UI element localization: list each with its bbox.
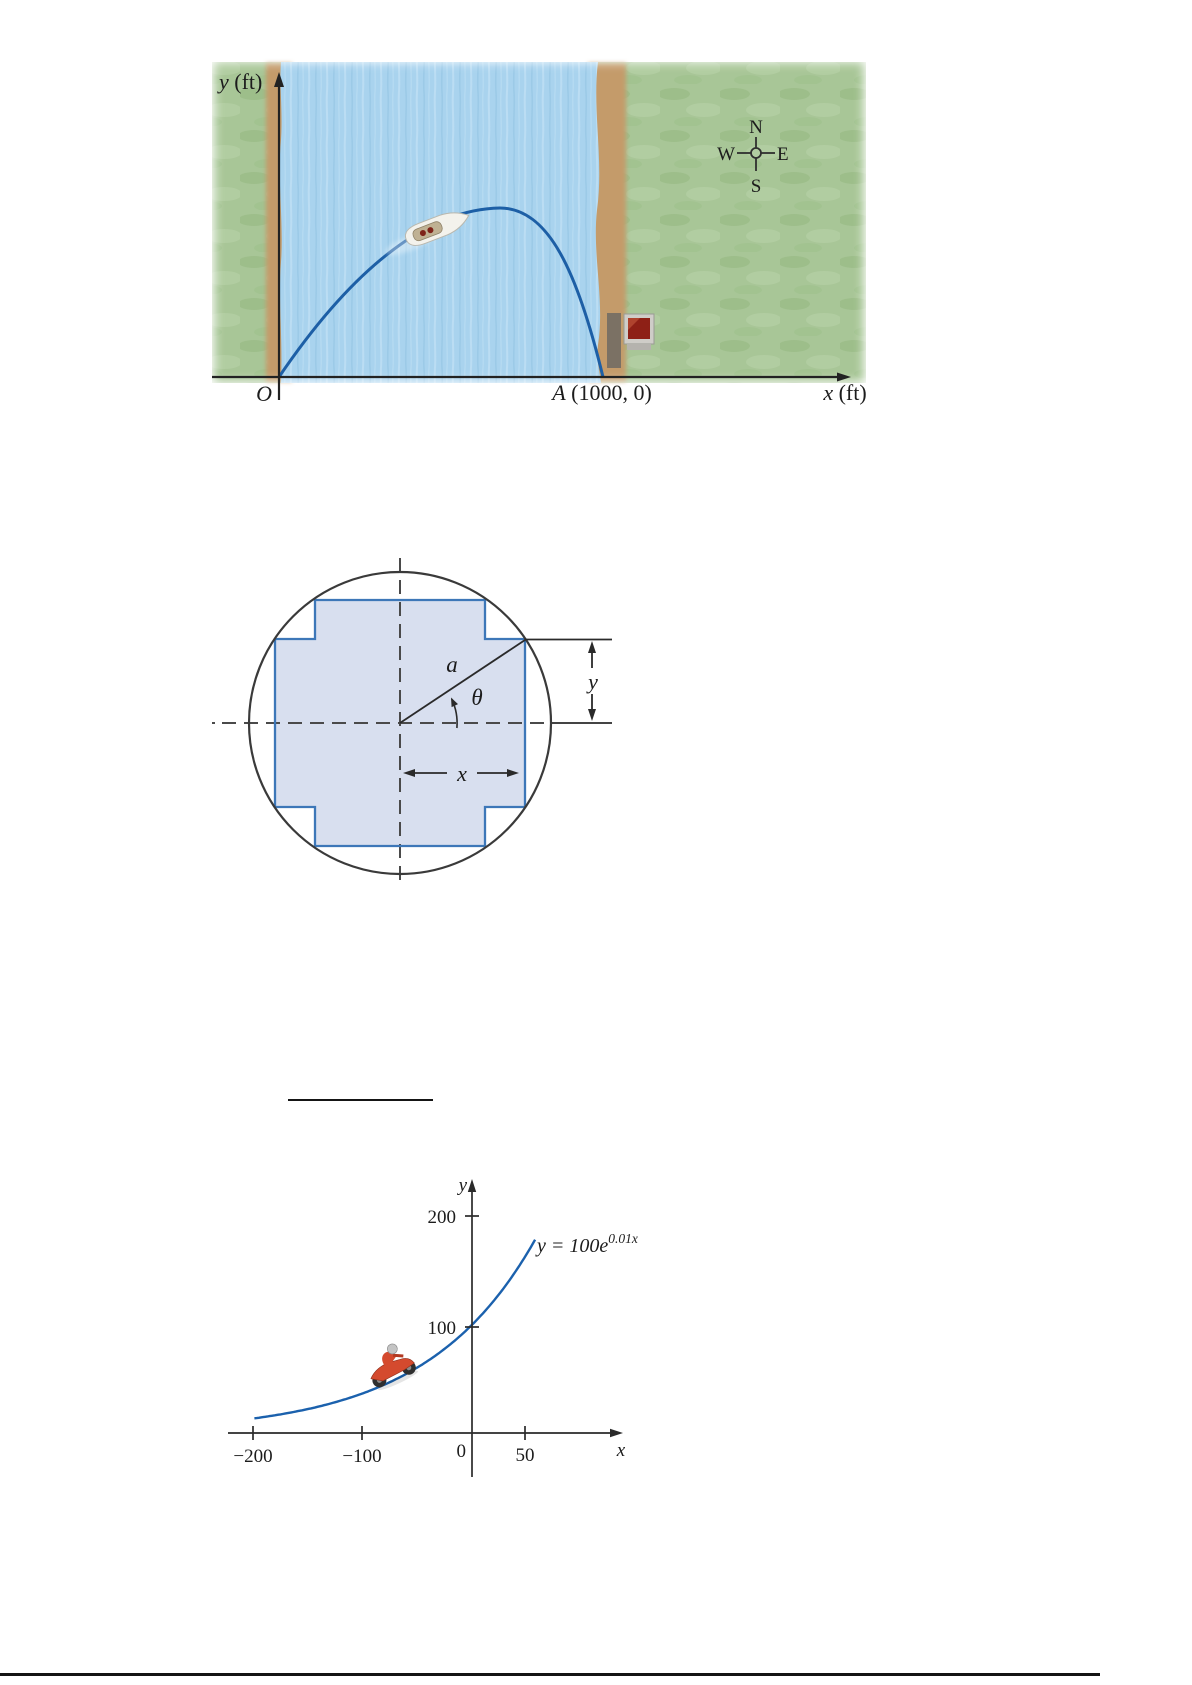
dim-y-label: y	[586, 669, 598, 694]
x-tick-label-neg100: −100	[342, 1446, 381, 1467]
cross-section-figure: y x a θ	[190, 540, 630, 900]
equation-base: y = 100e	[535, 1235, 608, 1257]
radius-label: a	[446, 652, 458, 677]
textbook-page: N S W E y (ft) x (ft) O A (1000, 0)	[0, 0, 1192, 1685]
equation-exponent: 0.01x	[608, 1231, 638, 1246]
y-axis-arrow-icon	[468, 1179, 476, 1192]
y-axis-label: y (ft)	[217, 69, 262, 94]
x-axis-unit: (ft)	[833, 380, 867, 405]
y-axis-label: y	[457, 1175, 468, 1196]
dim-x-label: x	[456, 761, 467, 786]
point-a-label: A (1000, 0)	[550, 380, 652, 405]
compass-south-label: S	[751, 176, 762, 197]
page-bottom-rule	[0, 1673, 1100, 1676]
x-tick-label-neg200: −200	[233, 1446, 272, 1467]
y-axis-unit: (ft)	[229, 69, 263, 94]
point-a-coords: (1000, 0)	[566, 380, 652, 405]
river-figure: N S W E y (ft) x (ft) O A (1000, 0)	[185, 50, 875, 410]
y-dimension	[525, 640, 612, 724]
compass-east-label: E	[777, 144, 789, 165]
origin-label: O	[256, 381, 272, 406]
x-axis-arrow-icon	[610, 1429, 623, 1437]
x-axis-var: x	[822, 380, 833, 405]
exponential-graph-figure: 200 100 0 −200 −100 50 x y y = 100e0.01x	[205, 1085, 675, 1485]
x-axis-label: x (ft)	[822, 380, 866, 405]
sign-base	[627, 344, 651, 350]
x-axis-label: x	[616, 1440, 626, 1461]
y-tick-label-200: 200	[428, 1207, 457, 1228]
y-axis-var: y	[217, 69, 229, 94]
point-a-var: A	[550, 380, 566, 405]
compass-north-label: N	[749, 117, 763, 138]
y-dim-arrow-up-icon	[588, 641, 596, 653]
y-dim-arrow-down-icon	[588, 709, 596, 721]
exponential-curve	[254, 1240, 535, 1419]
origin-label: 0	[457, 1441, 467, 1462]
x-tick-label-50: 50	[516, 1445, 535, 1466]
angle-label: θ	[471, 685, 482, 710]
graph-axes	[228, 1186, 612, 1477]
compass-west-label: W	[717, 144, 735, 165]
y-tick-label-100: 100	[428, 1318, 457, 1339]
curve-layer	[254, 1240, 535, 1419]
equation-annotation: y = 100e0.01x	[535, 1231, 638, 1257]
motorcycle-icon	[361, 1338, 419, 1393]
sign-post	[607, 313, 621, 368]
